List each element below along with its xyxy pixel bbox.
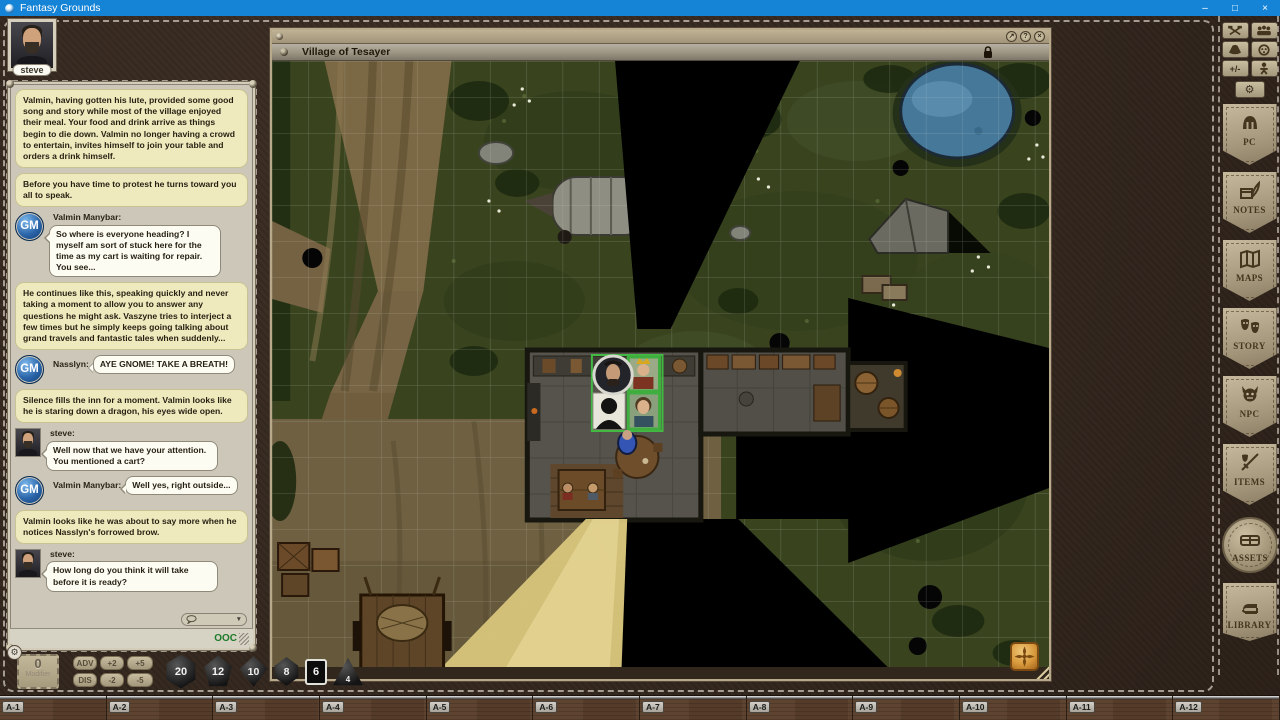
monster-head-icon [1238,383,1262,407]
chat-resize-grip[interactable] [239,633,249,645]
fantasy-grounds-app: Fantasy Grounds – □ × steve Valmin, havi… [0,0,1280,720]
close-button[interactable]: × [1250,0,1280,16]
gm-avatar: GM [15,355,44,384]
rivet [249,80,257,88]
village-map [272,61,1049,679]
speaker-name: Valmin Manybar: [49,212,221,223]
d12-die[interactable]: 12 [203,656,233,688]
dice-bar: 0 Modifier ⚙ ADV +2 +5 DIS -2 -5 20 12 1… [0,648,1218,695]
player-portrait[interactable]: steve [8,19,56,71]
map-close-button[interactable]: × [1034,31,1045,42]
sidebar-npc-button[interactable]: NPC [1223,376,1277,437]
hotkey-slot[interactable]: A-11 [1067,696,1174,720]
minus5-button[interactable]: -5 [127,673,153,687]
dice-bag-button[interactable] [1222,41,1249,58]
theater-masks-icon [1238,315,1262,339]
hotkey-slot[interactable]: A-8 [747,696,854,720]
hotkey-bar: A-1 A-2 A-3 A-4 A-5 A-6 A-7 A-8 A-9 A-10… [0,695,1280,720]
token-round-portrait [594,356,632,394]
d8-die[interactable]: 8 [274,657,299,686]
modifiers-button[interactable]: +/- [1222,60,1249,77]
modifier-label: Modifier [19,671,57,678]
speaker-name: Valmin Manybar: [49,480,121,491]
minimize-button[interactable]: – [1190,0,1220,16]
plus2-button[interactable]: +2 [100,656,124,670]
hotkey-slot[interactable]: A-6 [533,696,640,720]
speaker-name: steve: [46,428,218,439]
map-radio-knob[interactable] [280,48,288,56]
speech-bubble: AYE GNOME! TAKE A BREATH! [93,355,235,374]
assets-chest-icon [1239,527,1261,551]
gm-avatar: GM [15,212,44,241]
gm-chat-message: GM Valmin Manybar: Well yes, right outsi… [15,476,248,505]
map-titlebar[interactable]: Village of Tesayer [272,44,1049,61]
tokens-button[interactable] [1251,41,1278,58]
frame-knob [276,33,283,40]
map-popout-button[interactable]: ↗ [1006,31,1017,42]
sidebar: +/- ⚙ PC NOTES MAPS [1217,16,1280,699]
story-message: Before you have time to protest he turns… [15,173,248,207]
hotkey-slot[interactable]: A-7 [640,696,747,720]
speech-bubble: Well now that we have your attention. Yo… [46,441,218,471]
d10-die[interactable]: 10 [239,656,268,687]
story-message: Valmin, having gotten his lute, provided… [15,89,248,168]
chat-message-list[interactable]: Valmin, having gotten his lute, provided… [10,84,253,611]
chevron-down-icon: ▼ [236,616,242,623]
map-canvas[interactable] [272,61,1049,679]
speaker-name: Nasslyn: [49,359,89,370]
chat-window[interactable]: Valmin, having gotten his lute, provided… [10,84,253,648]
d20-die[interactable]: 20 [165,655,197,689]
hotkey-slot[interactable]: A-9 [853,696,960,720]
player-name-label: steve [12,64,51,76]
ooc-mode-label: OOC [214,633,237,644]
speech-bubble: How long do you think it will take befor… [46,561,218,591]
rivet [6,80,14,88]
sidebar-maps-button[interactable]: MAPS [1223,240,1277,301]
library-books-icon [1239,594,1261,618]
tools-button[interactable] [1222,22,1249,39]
hotkey-slot[interactable]: A-3 [213,696,320,720]
app-icon [5,4,14,13]
character-button[interactable] [1251,60,1278,77]
disadvantage-button[interactable]: DIS [73,673,97,687]
lock-icon[interactable] [983,46,993,59]
steve-avatar [15,549,41,578]
player-chat-message: steve: Well now that we have your attent… [15,428,248,471]
maximize-button[interactable]: □ [1220,0,1250,16]
settings-gear-button[interactable]: ⚙ [1235,81,1265,98]
d6-die[interactable]: 6 [305,659,327,685]
sword-shield-icon [1238,451,1262,475]
player-chat-message: steve: How long do you think it will tak… [15,549,248,592]
story-message: Silence fills the inn for a moment. Valm… [15,389,248,423]
d4-die[interactable]: 4 [333,657,363,687]
map-window-frame[interactable]: ↗ ? × [272,30,1049,44]
hotkey-slot[interactable]: A-5 [427,696,534,720]
helmet-icon [1238,111,1262,135]
gm-chat-message: GM Valmin Manybar: So where is everyone … [15,212,248,277]
story-message: He continues like this, speaking quickly… [15,282,248,350]
modifier-box[interactable]: 0 Modifier [17,654,59,689]
map-help-button[interactable]: ? [1020,31,1031,42]
steve-avatar [15,428,41,457]
hotkey-slot[interactable]: A-12 [1173,696,1280,720]
speech-bubble: So where is everyone heading? I myself a… [49,225,221,278]
map-window[interactable]: ↗ ? × Village of Tesayer [270,28,1051,681]
advantage-button[interactable]: ADV [73,656,97,670]
story-message: Valmin looks like he was about to say mo… [15,510,248,544]
hotkey-slot[interactable]: A-1 [0,696,107,720]
sidebar-pc-button[interactable]: PC [1223,104,1277,165]
sidebar-assets-button[interactable]: ASSETS [1222,517,1278,573]
speech-bubble: Well yes, right outside... [125,476,237,495]
party-button[interactable] [1251,22,1278,39]
sidebar-items-button[interactable]: ITEMS [1223,444,1277,505]
plus5-button[interactable]: +5 [127,656,153,670]
hotkey-slot[interactable]: A-2 [107,696,214,720]
token-woman [628,393,659,429]
map-title: Village of Tesayer [302,46,390,58]
modifier-gear-icon[interactable]: ⚙ [7,645,22,660]
chat-input[interactable]: OOC [10,628,253,648]
map-icon [1238,247,1262,271]
hotkey-slot[interactable]: A-10 [960,696,1067,720]
sidebar-story-button[interactable]: STORY [1223,308,1277,369]
chat-mode-dropdown[interactable]: ▼ [181,613,247,626]
speaker-name: steve: [46,549,218,560]
sidebar-notes-button[interactable]: NOTES [1223,172,1277,233]
gm-avatar: GM [15,476,44,505]
token-silhouette [593,393,625,429]
gm-chat-message: GM Nasslyn: AYE GNOME! TAKE A BREATH! [15,355,248,384]
book-quill-icon [1238,179,1262,203]
speech-bubble-icon [186,615,197,624]
hotkey-slot[interactable]: A-4 [320,696,427,720]
titlebar: Fantasy Grounds – □ × [0,0,1280,16]
sidebar-library-button[interactable]: LIBRARY [1223,583,1277,641]
window-title: Fantasy Grounds [20,2,101,14]
minus2-button[interactable]: -2 [100,673,124,687]
modifier-value: 0 [19,656,57,671]
portrait-image [11,22,53,68]
